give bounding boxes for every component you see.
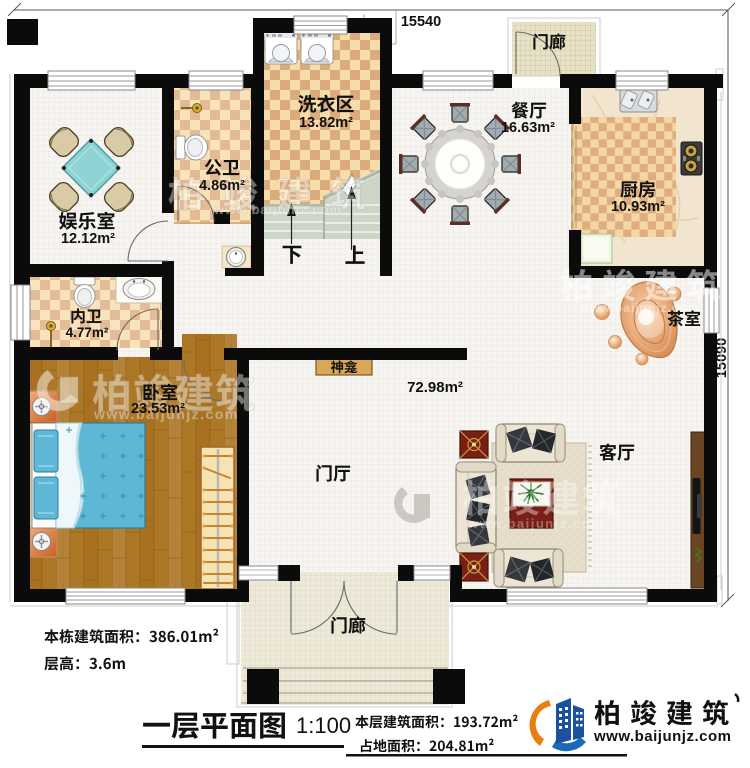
svg-text:72.98m²: 72.98m² (407, 379, 463, 396)
svg-text:16.63m²: 16.63m² (501, 120, 555, 136)
svg-text:www.baijunjz.com: www.baijunjz.com (467, 516, 604, 531)
svg-text:1:100: 1:100 (296, 713, 351, 738)
svg-text:13.82m²: 13.82m² (299, 115, 353, 131)
svg-text:www.baijunjz.com: www.baijunjz.com (213, 202, 342, 217)
svg-text:10.93m²: 10.93m² (611, 199, 665, 215)
svg-text:4.77m²: 4.77m² (66, 325, 109, 340)
svg-text:15540: 15540 (401, 14, 441, 30)
svg-text:4.86m²: 4.86m² (199, 178, 245, 194)
svg-text:23.53m²: 23.53m² (131, 401, 185, 417)
svg-text:12.12m²: 12.12m² (61, 231, 115, 247)
svg-text:www.baijunjz.com: www.baijunjz.com (593, 728, 731, 745)
